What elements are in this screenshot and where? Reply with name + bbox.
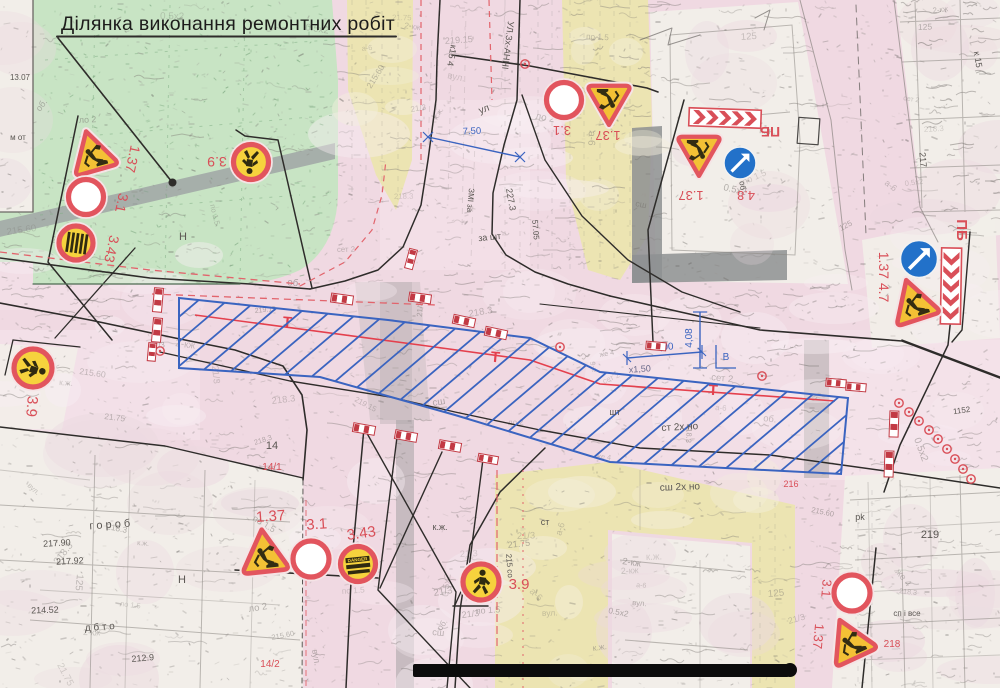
svg-text:219: 219 [921,529,939,541]
svg-text:х1,50: х1,50 [628,363,651,375]
svg-text:Ділянка виконання ремонтних ро: Ділянка виконання ремонтних робіт [61,13,395,35]
svg-text:а-6: а-6 [715,403,728,413]
svg-text:а-6: а-6 [585,131,597,146]
svg-text:вул.: вул. [632,598,647,608]
svg-text:к.ж.: к.ж. [433,522,448,532]
svg-text:13.07: 13.07 [10,73,31,82]
svg-text:21.75: 21.75 [392,13,412,22]
svg-text:21/3: 21/3 [210,365,222,384]
svg-text:1.37 4.7: 1.37 4.7 [876,252,892,303]
svg-text:ПБ: ПБ [953,219,970,241]
svg-text:3.9: 3.9 [22,395,41,417]
svg-text:14/1: 14/1 [262,462,282,473]
svg-text:сш: сш [635,198,648,210]
svg-text:Н: Н [179,231,187,243]
svg-text:ло 2: ло 2 [79,114,97,125]
svg-text:ст: ст [541,517,550,527]
svg-text:14: 14 [266,440,278,452]
svg-text:218: 218 [884,639,901,650]
svg-text:21/3: 21/3 [461,608,480,620]
svg-text:125: 125 [918,22,933,32]
svg-text:шт: шт [609,407,620,417]
svg-text:217.90: 217.90 [43,537,71,548]
svg-text:212.9: 212.9 [131,652,154,664]
svg-text:216: 216 [783,479,798,489]
svg-text:1.37: 1.37 [256,507,286,526]
svg-text:м от: м от [10,133,26,142]
svg-text:7.50: 7.50 [462,126,481,138]
svg-text:125: 125 [767,588,785,600]
svg-text:В: В [723,352,730,363]
svg-text:214.52: 214.52 [31,605,59,616]
svg-text:217.92: 217.92 [56,555,84,566]
svg-text:об.: об. [763,412,777,425]
svg-text:pk: pk [855,512,865,522]
svg-text:вул.: вул. [542,607,558,618]
svg-text:3.9: 3.9 [207,154,227,170]
svg-text:1.37: 1.37 [810,623,827,650]
svg-text:по 1.5: по 1.5 [341,584,365,596]
svg-text:3.1: 3.1 [553,123,571,138]
svg-text:а-6: а-6 [636,581,647,590]
svg-text:57.05: 57.05 [530,219,541,240]
svg-text:218.3: 218.3 [394,192,414,201]
svg-text:к.ж.: к.ж. [646,551,663,563]
svg-text:4,08: 4,08 [684,328,695,348]
svg-text:3.1: 3.1 [818,579,835,598]
svg-text:ст 2х но: ст 2х но [661,421,699,434]
svg-text:Н: Н [178,574,186,586]
svg-text:217: 217 [917,152,928,168]
svg-text:219.15: 219.15 [444,34,473,46]
svg-text:3.9: 3.9 [509,576,530,593]
svg-text:125: 125 [740,31,757,43]
svg-text:T: T [490,349,501,367]
svg-text:к.ж.: к.ж. [137,538,150,548]
svg-text:сп і все: сп і все [893,609,921,618]
svg-text:к.ж.: к.ж. [59,377,73,388]
svg-text:3.1: 3.1 [306,515,328,533]
svg-text:по 1.5: по 1.5 [586,32,610,42]
svg-text:а-6: а-6 [361,43,373,53]
svg-text:к.ж.: к.ж. [592,641,608,653]
svg-text:218.3: 218.3 [924,124,945,134]
svg-text:1.37: 1.37 [595,128,620,143]
svg-text:сет 2: сет 2 [337,245,355,254]
svg-text:21/3: 21/3 [517,529,536,541]
svg-text:14/2: 14/2 [260,659,280,670]
svg-text:125: 125 [73,574,85,592]
svg-text:1.37: 1.37 [678,188,703,203]
svg-text:ПБ: ПБ [760,124,780,140]
svg-text:сш 2х но: сш 2х но [660,481,701,493]
svg-text:д б т о: д б т о [84,620,115,634]
